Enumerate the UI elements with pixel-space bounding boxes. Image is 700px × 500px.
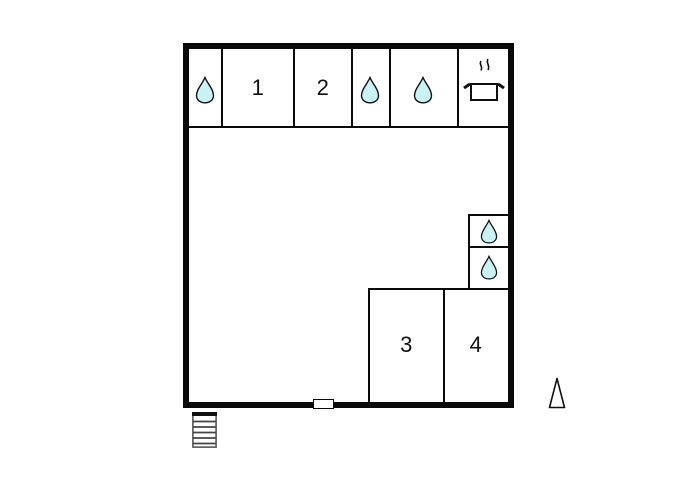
north-arrow-icon (548, 377, 566, 409)
wall-divider-5 (457, 49, 459, 128)
wall-small-cells-left (468, 214, 470, 290)
room-2-label: 2 (295, 49, 351, 126)
wall-divider-4 (389, 49, 391, 128)
kitchen-pot-icon (461, 57, 505, 107)
water-drop-icon (413, 76, 433, 104)
wall-top-row-bottom (189, 126, 508, 128)
stairs-icon (192, 412, 217, 448)
room-4-label: 4 (445, 290, 507, 400)
floor-plan-canvas: 1 2 3 4 (0, 0, 700, 500)
water-drop-icon (480, 255, 498, 280)
water-drop-icon (195, 76, 215, 104)
water-drop-icon (360, 76, 380, 104)
door-marker (313, 399, 334, 409)
room-1-label: 1 (223, 49, 293, 126)
room-3-label: 3 (370, 290, 443, 400)
water-drop-icon (480, 219, 498, 244)
wall-divider-3 (351, 49, 353, 128)
wall-small-cells-top (468, 214, 508, 216)
wall-small-cells-middle (468, 246, 508, 248)
